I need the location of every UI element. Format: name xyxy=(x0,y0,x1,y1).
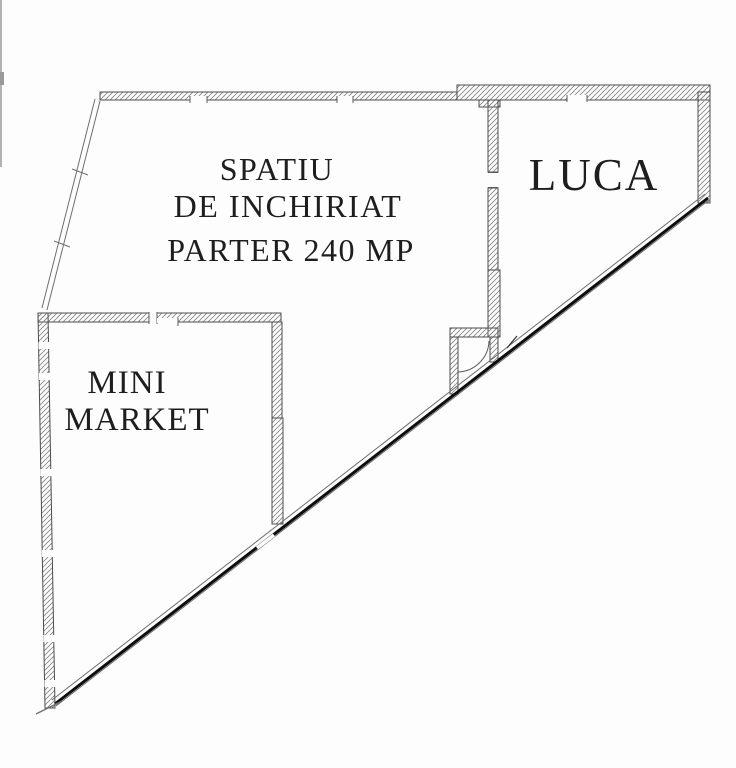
window-break xyxy=(337,96,353,102)
window-break xyxy=(39,373,50,380)
window-break xyxy=(157,318,178,323)
window-break xyxy=(567,95,587,101)
window-break xyxy=(44,635,55,642)
floor-plan-page: SPATIU DE INCHIRIAT PARTER 240 MP LUCA M… xyxy=(0,0,736,768)
mini-market-right-wall-upper xyxy=(272,322,282,418)
vestibule-left-wall xyxy=(450,337,458,394)
top-wall-spatiu xyxy=(100,92,457,100)
window-break xyxy=(39,342,50,349)
room-label-luca: LUCA xyxy=(529,150,660,200)
room-label-mini-market-line-1: MINI xyxy=(87,365,166,401)
window-break xyxy=(45,680,56,687)
edge-fragment-tick xyxy=(0,72,4,85)
right-wall-luca xyxy=(698,92,710,203)
vestibule-right-wall xyxy=(490,337,498,362)
window-break xyxy=(42,550,53,557)
partition-wall-lower xyxy=(488,270,500,337)
partition-wall-middle xyxy=(488,188,498,270)
room-label-spatiu-line-2: DE INCHIRIAT xyxy=(174,188,403,224)
mini-market-right-wall-lower xyxy=(272,418,283,524)
vestibule-top-wall xyxy=(450,328,498,337)
door-break xyxy=(149,312,157,323)
room-label-spatiu-line-1: SPATIU xyxy=(220,151,335,187)
door-opening xyxy=(486,173,500,187)
room-label-spatiu-line-3: PARTER 240 MP xyxy=(167,232,415,268)
partition-wall-upper xyxy=(488,100,498,172)
room-label-mini-market-line-2: MARKET xyxy=(64,402,209,438)
window-break xyxy=(190,96,207,102)
floor-plan-canvas: SPATIU DE INCHIRIAT PARTER 240 MP LUCA M… xyxy=(0,0,736,768)
window-break xyxy=(41,469,52,476)
